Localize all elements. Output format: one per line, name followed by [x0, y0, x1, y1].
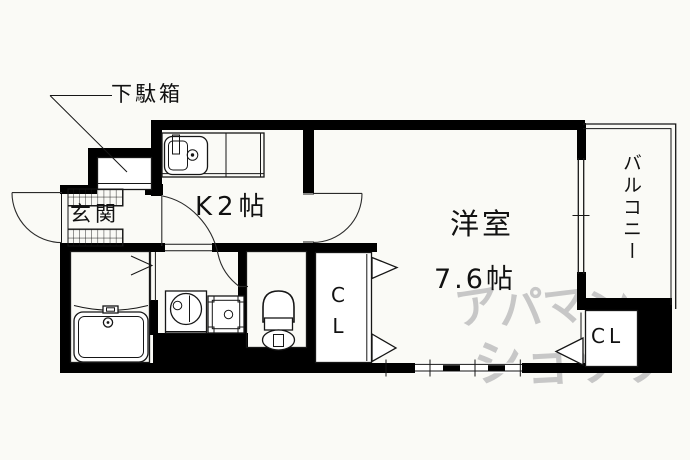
label-main-room: 洋室 [450, 209, 514, 239]
toilet-icon [263, 291, 295, 350]
closet-door-swing-icon [372, 258, 397, 279]
label-kitchen: K2帖 [195, 194, 270, 221]
label-entrance: 玄関 [70, 203, 120, 225]
entrance-tile-lower [68, 229, 123, 246]
label-closet-right: CL [591, 326, 624, 347]
floor-plan-drawing [0, 0, 690, 460]
toilet-room [247, 252, 307, 351]
washing-machine-pan-icon [208, 296, 244, 333]
balcony-window [573, 158, 590, 274]
label-shoe-cabinet: 下駄箱 [111, 83, 183, 105]
kitchen-sink-icon [165, 135, 208, 175]
label-balcony: バルコニー [620, 153, 640, 263]
label-closet-middle: CL [327, 283, 348, 345]
washroom [166, 291, 245, 333]
label-main-room-size: 7.6帖 [434, 266, 516, 294]
closet-door-swing-icon [556, 338, 583, 365]
washbasin-icon [166, 291, 207, 333]
shoe-cabinet-box [98, 158, 152, 190]
bathroom [71, 252, 156, 363]
kitchen-counter [162, 133, 264, 177]
closet-door-swing-icon [372, 334, 396, 362]
entrance-door [12, 193, 62, 243]
floor-plan: アパマン ショップ [0, 0, 690, 460]
main-room-door [303, 193, 362, 242]
bathtub-icon [74, 306, 148, 362]
